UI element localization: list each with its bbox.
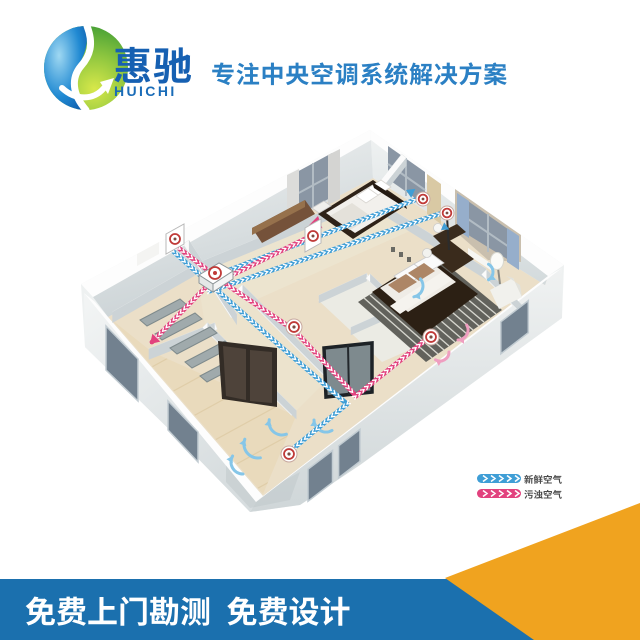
svg-text:HUICHI: HUICHI (114, 83, 177, 99)
